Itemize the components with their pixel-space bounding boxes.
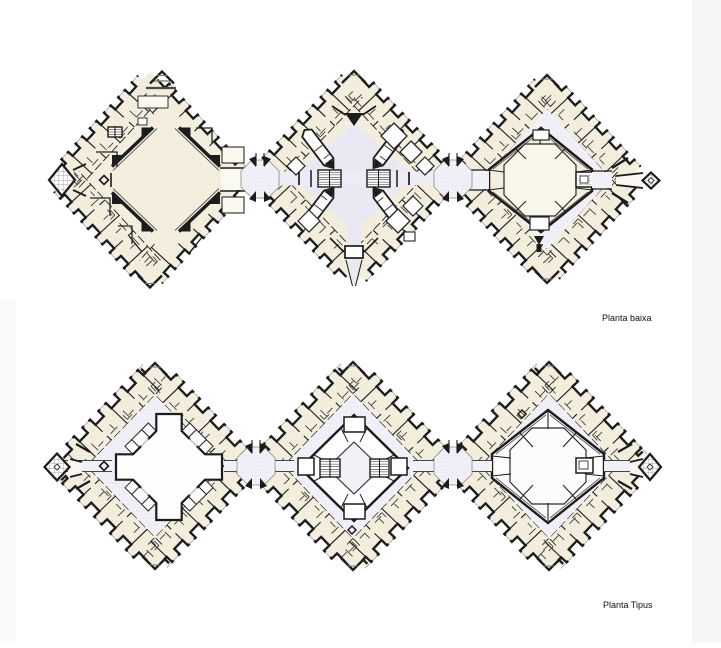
svg-text:Planta baixa: Planta baixa <box>602 313 652 323</box>
svg-text:Planta Tipus: Planta Tipus <box>603 600 653 610</box>
